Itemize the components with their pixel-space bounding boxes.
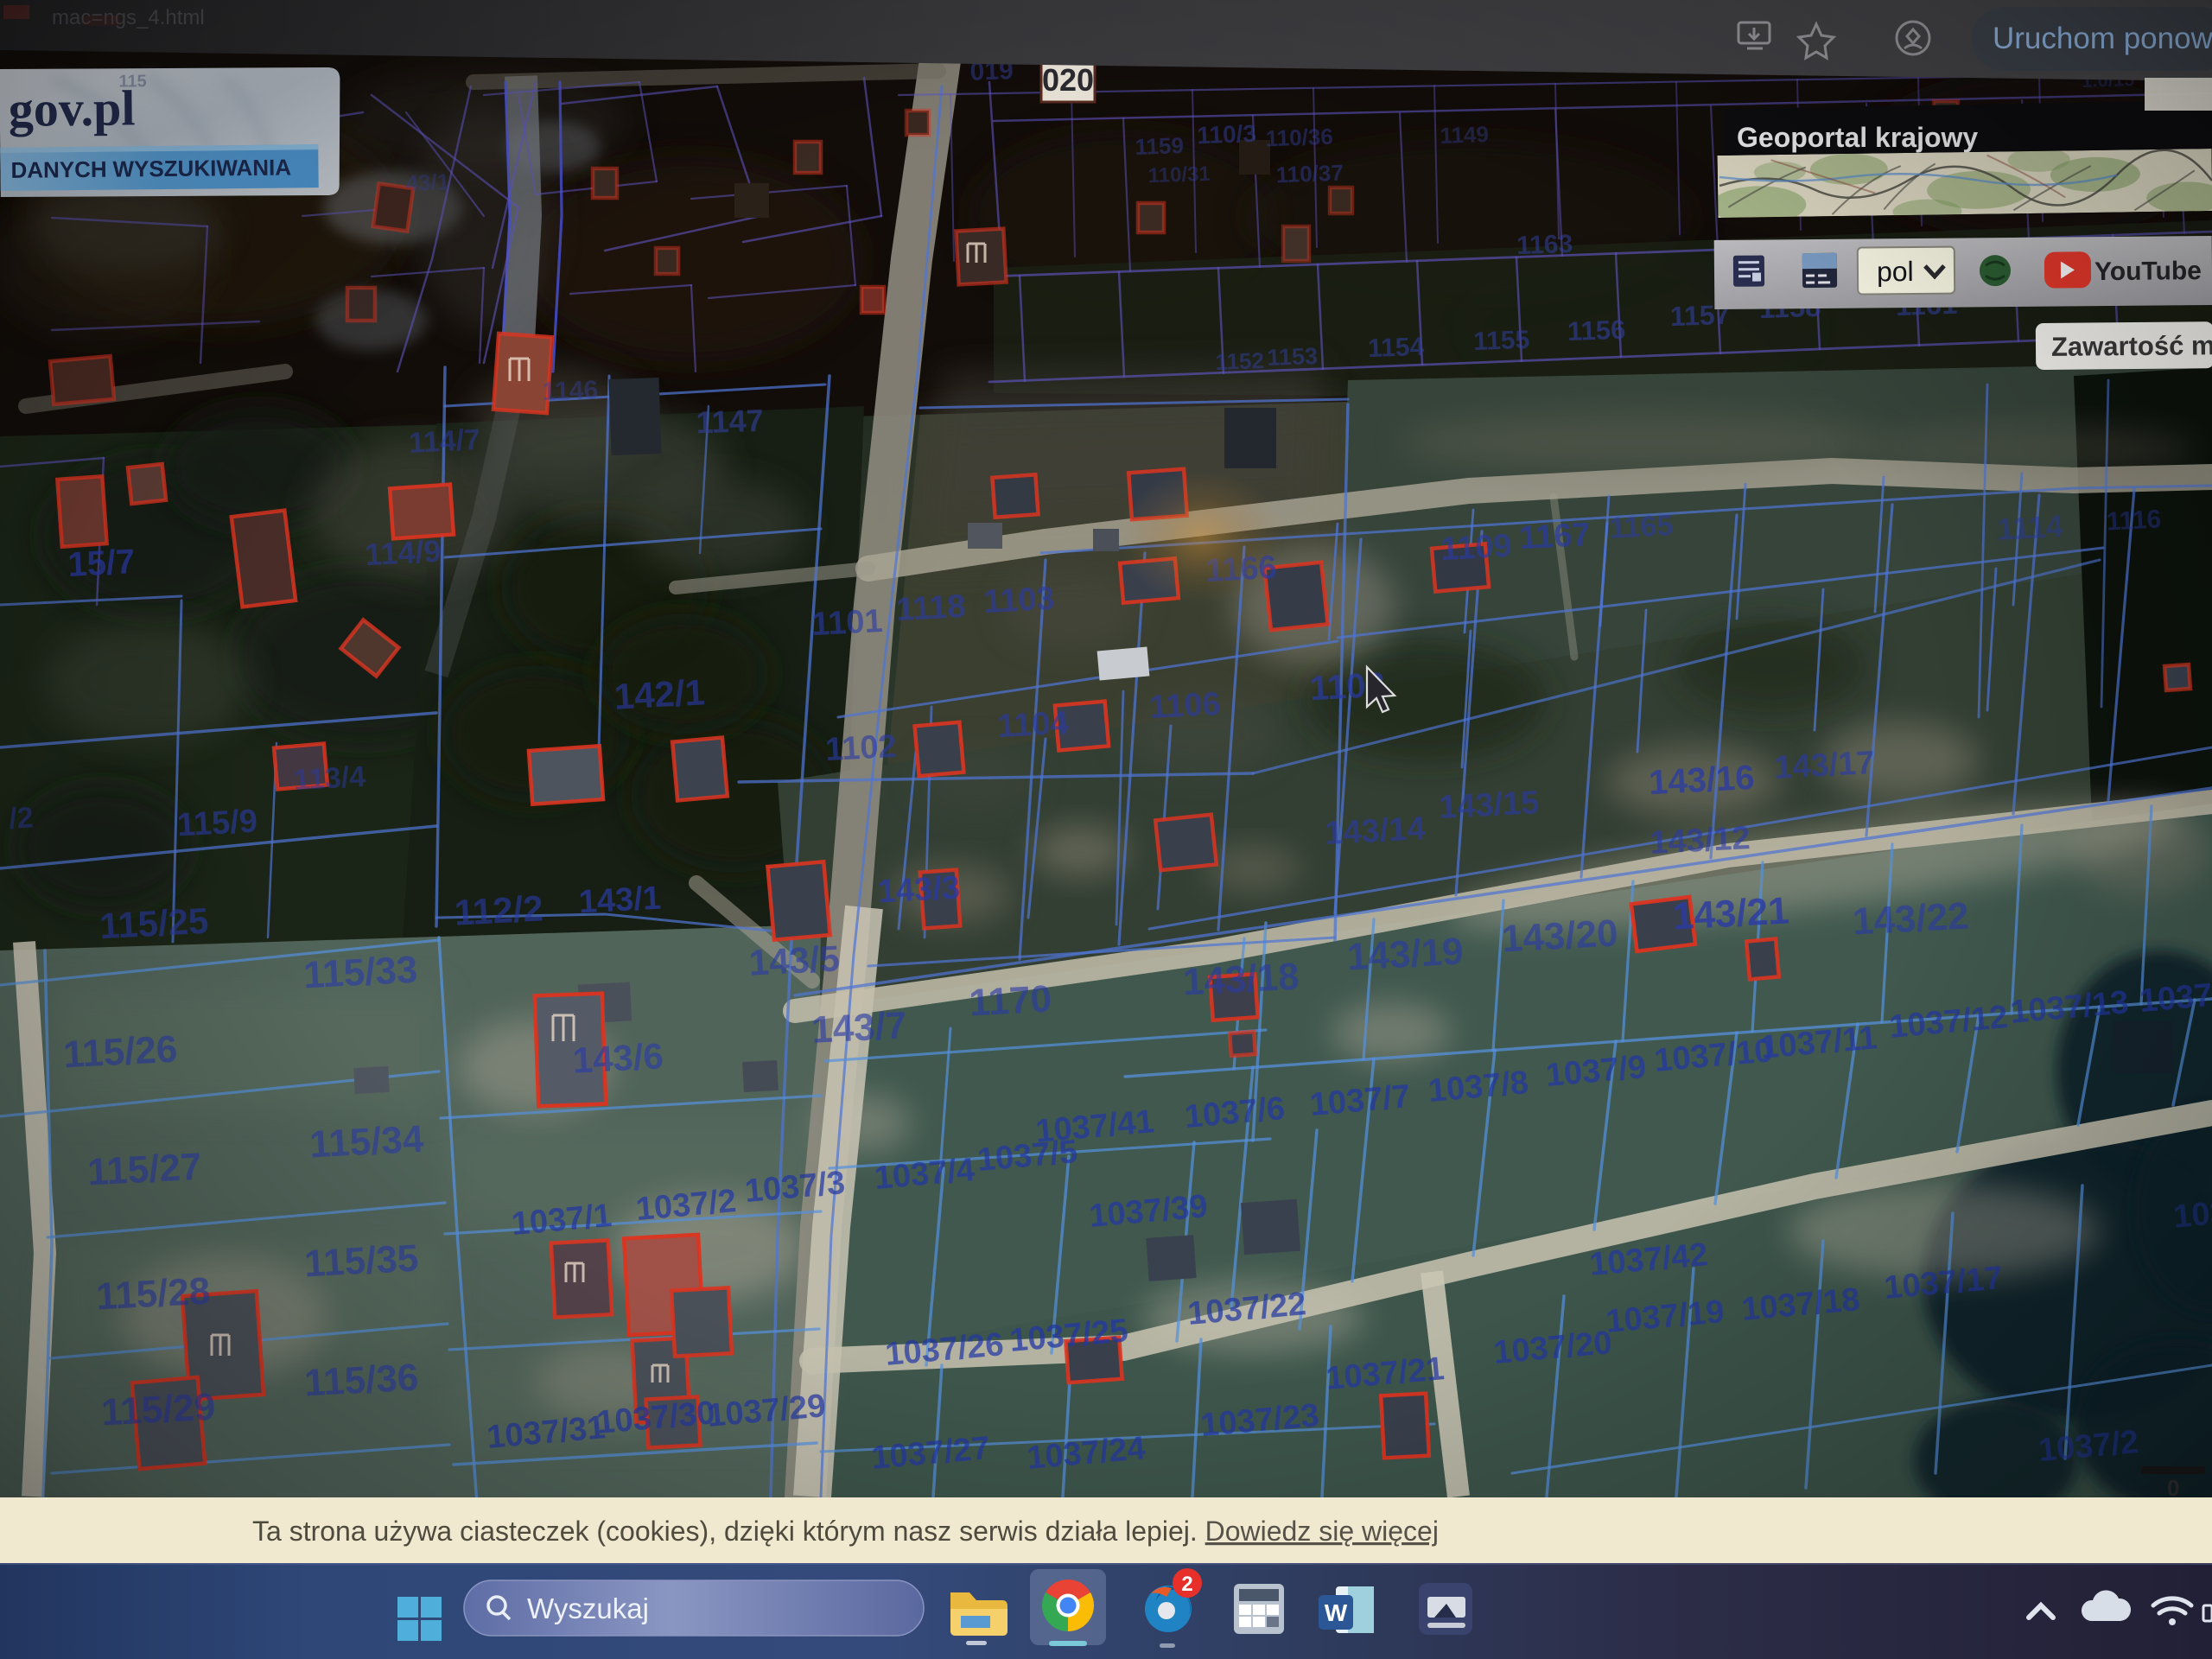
svg-text:W: W — [1325, 1599, 1348, 1626]
svg-text:2: 2 — [1181, 1573, 1192, 1596]
svg-text:Ta strona używa ciasteczek (co: Ta strona używa ciasteczek (cookies), dz… — [252, 1516, 1439, 1547]
svg-text:Wyszukaj: Wyszukaj — [527, 1592, 649, 1624]
